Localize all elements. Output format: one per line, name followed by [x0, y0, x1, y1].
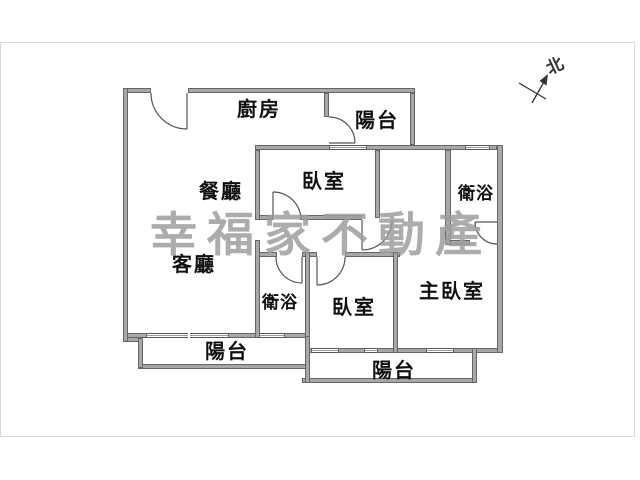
- room-label-bath-upper: 衛浴: [458, 185, 494, 202]
- room-label-bedroom-bottom: 臥室: [332, 298, 376, 318]
- room-label-balcony-top: 陽台: [355, 111, 399, 131]
- room-label-kitchen: 廚房: [237, 100, 281, 120]
- room-label-bath-lower: 衛浴: [262, 294, 298, 311]
- room-label-balcony-left: 陽台: [205, 342, 249, 362]
- entry-door-arc: [151, 93, 187, 129]
- watermark-text: 幸福家不動產: [150, 211, 492, 258]
- room-label-balcony-right: 陽台: [372, 361, 416, 381]
- balcony-top-door-arc: [329, 117, 355, 143]
- bedroom-bottom-door-arc: [317, 257, 345, 285]
- room-label-living: 客廳: [172, 255, 216, 275]
- floorplan-canvas: 北 幸福家不動產 廚房 陽台 臥室 衛浴 餐廳 客廳 衛浴 臥室 主臥室 陽台 …: [0, 0, 640, 480]
- room-label-master-bedroom: 主臥室: [419, 282, 485, 302]
- room-label-bedroom-top: 臥室: [302, 172, 346, 192]
- room-label-dining: 餐廳: [199, 182, 243, 202]
- north-label: 北: [543, 54, 566, 78]
- north-arrow-icon: [519, 74, 548, 103]
